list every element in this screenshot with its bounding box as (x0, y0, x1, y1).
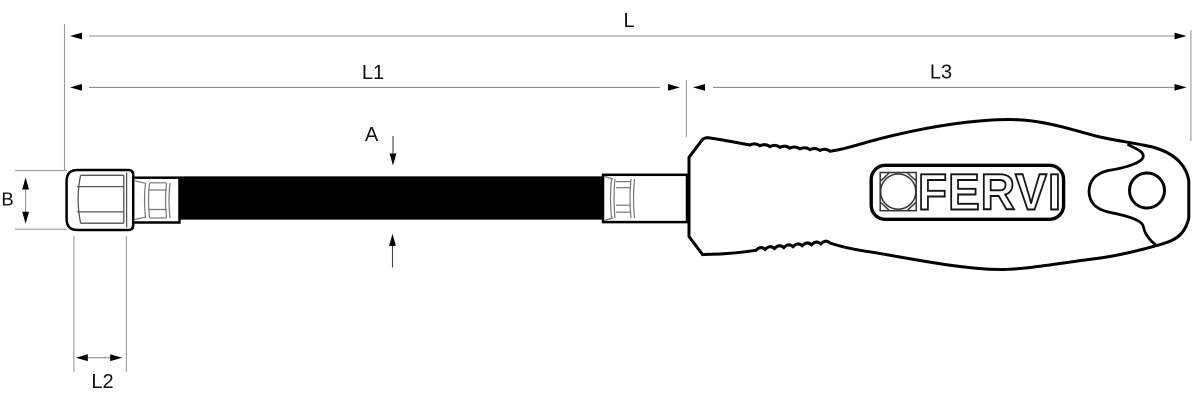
svg-text:B: B (1, 189, 13, 210)
svg-text:L: L (623, 10, 634, 32)
svg-text:FERVI: FERVI (918, 164, 1062, 221)
svg-text:L1: L1 (362, 62, 384, 84)
svg-text:L3: L3 (930, 62, 952, 84)
svg-text:A: A (365, 124, 379, 146)
svg-text:L2: L2 (91, 371, 113, 393)
